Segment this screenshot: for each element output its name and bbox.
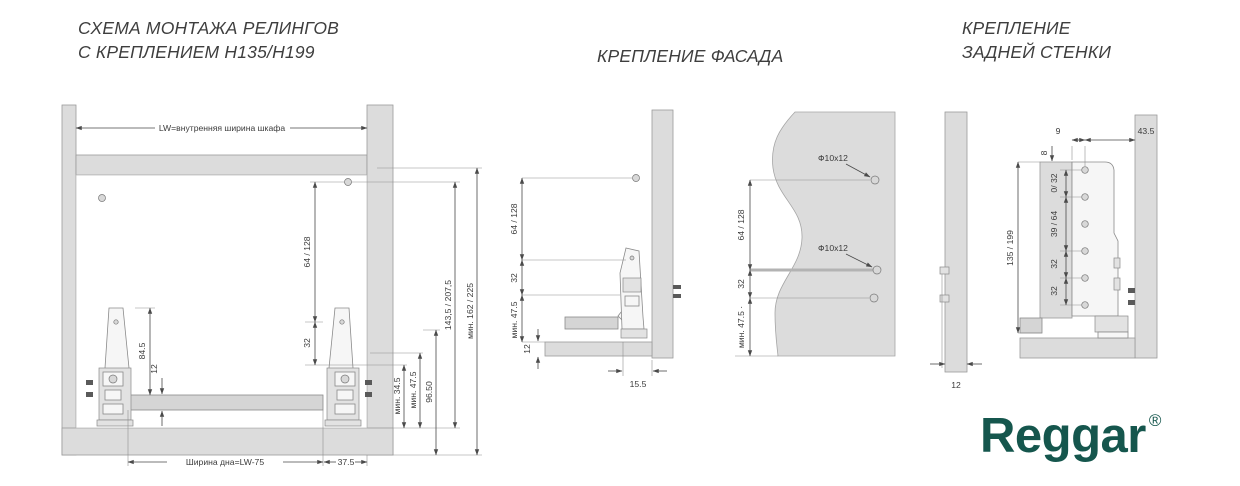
facade-panel-front (772, 112, 895, 356)
dim-hole-32-b: 32 (1049, 286, 1059, 296)
dim-facade-thickness: 12 (951, 380, 961, 390)
dim-bracket-depth: 15.5 (630, 379, 647, 389)
cabinet-side-wall (1135, 115, 1157, 358)
rail-scheme-title: СХЕМА МОНТАЖА РЕЛИНГОВ С КРЕПЛЕНИЕМ Н135… (78, 16, 339, 64)
rail-scheme-title-line2: С КРЕПЛЕНИЕМ Н135/Н199 (78, 40, 339, 64)
wall-screw-hole (99, 195, 106, 202)
facade-bracket (618, 248, 647, 338)
dim-top-offset: 8 (1039, 150, 1049, 155)
dim-min-34-5: мин. 34.5 (392, 377, 402, 414)
drawer-bottom-panel (1020, 318, 1042, 333)
dim-hole-step: 32 (736, 279, 746, 289)
dim-hole-32-a: 32 (1049, 259, 1059, 269)
drawer-bottom-panel (565, 317, 618, 329)
facade-screw-tab (673, 285, 681, 289)
dim-bottom-width: Ширина дна=LW-75 (186, 457, 264, 467)
dim-min-47-5: мин. 47.5 (408, 371, 418, 408)
back-wall-title: КРЕПЛЕНИЕ ЗАДНЕЙ СТЕНКИ (962, 16, 1111, 64)
hole-size-label-top: Ф10x12 (818, 153, 848, 163)
facade-section-drawing: 64 / 128 32 мин. 47.5 12 15.5 (505, 98, 710, 398)
dim-rail-offset: 64 / 128 (509, 203, 519, 234)
dim-min-47-5: мин. 47.5 · (736, 306, 746, 348)
facade-front-drawing: Ф10x12 Ф10x12 64 / 128 32 мин. 47.5 · (715, 98, 910, 393)
dim-hole-0-32: 0/ 32 (1049, 173, 1059, 192)
dim-rail-to-hole: 32 (302, 338, 312, 348)
rail-scheme-title-line1: СХЕМА МОНТАЖА РЕЛИНГОВ (78, 16, 339, 40)
hole-size-label-middle: Ф10x12 (818, 243, 848, 253)
fixing-clip (940, 295, 949, 302)
drill-hole-bottom (870, 294, 878, 302)
dim-side-clearance: 37.5 (338, 457, 355, 467)
dim-offset-wall: 43.5 (1138, 126, 1155, 136)
dim-min-inner-height: мин. 162 / 225 (465, 283, 475, 339)
rail-mounting-hole (345, 179, 352, 186)
rail-scheme-drawing: LW=внутренняя ширина шкафа 64 / 128 32 8… (55, 93, 495, 485)
dim-bottom-thickness: 12 (149, 364, 159, 374)
dim-bottom-gap: 12 (522, 344, 532, 354)
dim-min-47-5: мин. 47.5 (509, 301, 519, 338)
dim-rail-offset: 64 / 128 (302, 236, 312, 267)
facade-screw-tab (673, 294, 681, 298)
drawer-bottom-panel (128, 395, 323, 410)
dim-box-height: 143,5 / 207,5 (443, 280, 453, 330)
cabinet-bottom (62, 428, 393, 455)
cabinet-bottom (1020, 338, 1135, 358)
facade-title-line: КРЕПЛЕНИЕ ФАСАДА (597, 44, 783, 68)
cabinet-right-wall (367, 105, 393, 455)
rail-mounting-hole (633, 175, 640, 182)
back-wall-title-line2: ЗАДНЕЙ СТЕНКИ (962, 40, 1111, 64)
cabinet-left-wall (62, 105, 76, 455)
fixing-clip (940, 267, 949, 274)
cabinet-bottom (545, 342, 652, 356)
brand-logo: Reggar® (980, 408, 1161, 464)
registered-trademark-icon: ® (1149, 411, 1161, 430)
dim-hole-step: 32 (509, 273, 519, 283)
drill-hole-middle (873, 266, 881, 274)
cabinet-top-rail (76, 155, 367, 175)
brand-name: Reggar (980, 409, 1146, 463)
facade-panel-edge (945, 112, 967, 372)
catalog-page: СХЕМА МОНТАЖА РЕЛИНГОВ С КРЕПЛЕНИЕМ Н135… (0, 0, 1240, 486)
dim-rail-offset: 64 / 128 (736, 209, 746, 240)
facade-panel (652, 110, 673, 358)
dim-side-height: 84.5 (137, 342, 147, 359)
facade-side-drawing: 12 (925, 98, 1005, 398)
dim-96-5: 96.50 (424, 381, 434, 403)
dim-inner-width: LW=внутренняя ширина шкафа (159, 123, 285, 133)
dim-offset-front: 9 (1056, 126, 1061, 136)
dim-hole-39-64: 39 / 64 (1049, 211, 1059, 238)
facade-title: КРЕПЛЕНИЕ ФАСАДА (597, 44, 783, 68)
drill-hole-top (871, 176, 879, 184)
dim-panel-height: 135 / 199 (1005, 230, 1015, 266)
back-wall-title-line1: КРЕПЛЕНИЕ (962, 16, 1111, 40)
back-wall-drawing: 9 43.5 8 0/ 32 39 / 64 32 32 135 / 199 (1000, 108, 1215, 398)
drawer-side-profile (1072, 162, 1118, 316)
